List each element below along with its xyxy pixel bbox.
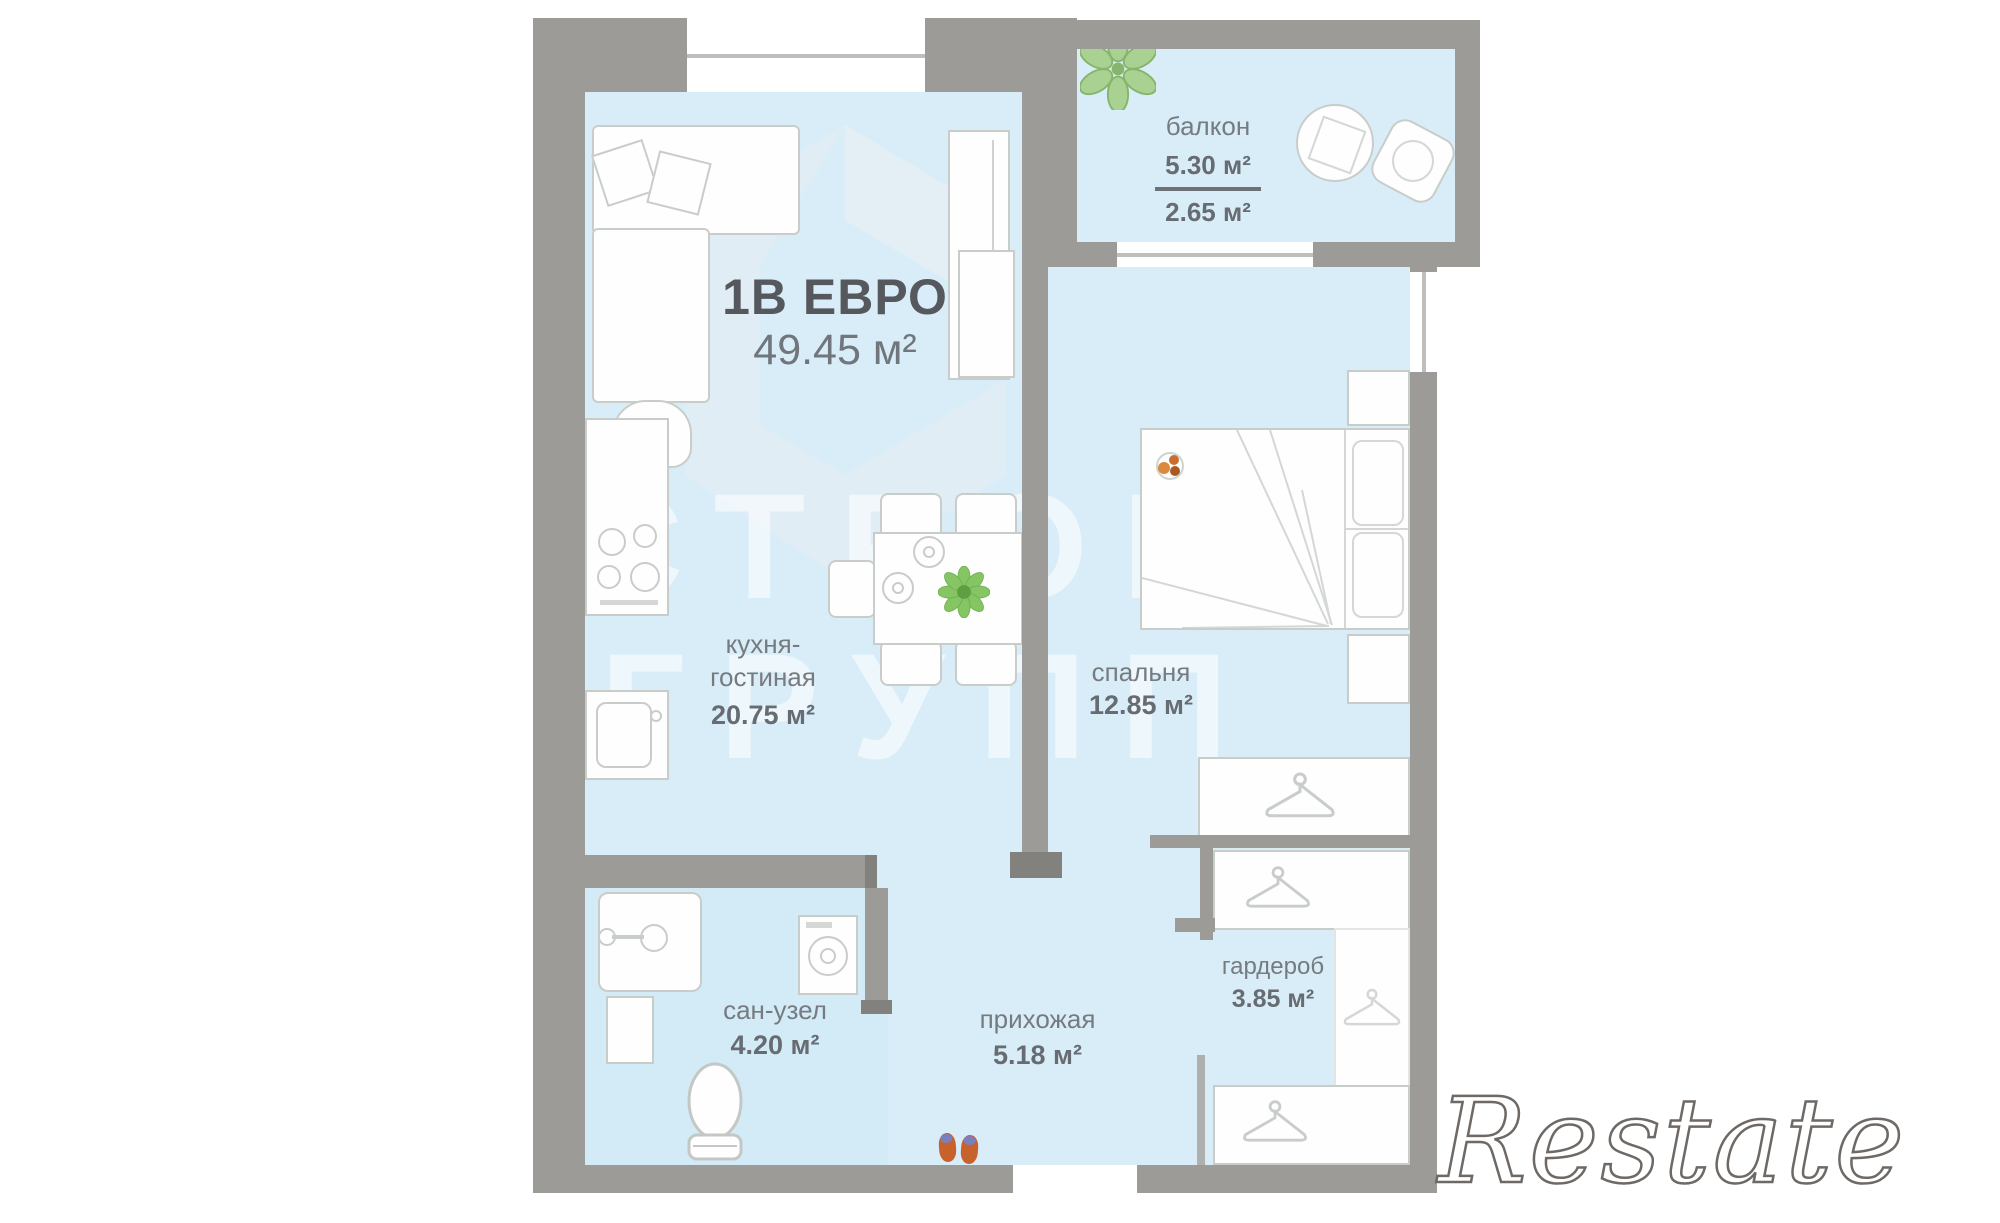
dining-chair-bottom-2 — [955, 640, 1017, 686]
wardrobe-label: гардероб — [1213, 950, 1333, 983]
hob-controls — [600, 600, 658, 605]
floor-plan: СТРОИМ ГРУПП — [0, 0, 2000, 1223]
balcony-area: 5.30 м² 2.65 м² — [1124, 150, 1292, 228]
toilet-icon — [680, 1062, 750, 1164]
wall-bedroom-closet-bottom — [1150, 835, 1410, 848]
table-plant-icon — [938, 566, 990, 618]
kitchen-living-label: кухня- гостиная — [688, 628, 838, 694]
balcony-chair-square-pillow — [1392, 140, 1434, 182]
wall-balcony-bottom-left — [1077, 242, 1117, 267]
balcony-area-full: 5.30 м² — [1155, 150, 1261, 191]
wardrobe-hanger-top-icon — [1243, 862, 1313, 914]
nightstand-bottom — [1347, 634, 1410, 704]
plan-total-area: 49.45 м² — [690, 326, 980, 375]
wall-bathroom-top — [585, 855, 877, 888]
bathroom-label: сан-узел — [700, 994, 850, 1027]
wardrobe-area: 3.85 м² — [1213, 985, 1333, 1014]
kitchen-living-label-line2: гостиная — [710, 662, 816, 692]
kitchen-living-label-line1: кухня- — [726, 629, 801, 659]
dining-chair-bottom-1 — [880, 640, 942, 686]
hob-burner-2 — [633, 524, 657, 548]
hob-burner-1 — [598, 528, 626, 556]
wall-middle-vertical — [1022, 267, 1048, 877]
bedroom-balcony-window — [1117, 244, 1313, 265]
kitchen-sink-tap — [650, 710, 662, 722]
hallway-label: прихожая — [960, 1003, 1115, 1036]
wall-wardrobe-left-lower — [1197, 1055, 1205, 1165]
washing-machine-controls — [806, 922, 832, 928]
wall-bathroom-right-cap — [861, 1000, 892, 1014]
wall-middle-cap — [1010, 852, 1062, 878]
plate-2-inner — [892, 582, 904, 594]
wall-right — [1410, 242, 1437, 1193]
hob-burner-3 — [597, 565, 621, 589]
wardrobe-hanger-bottom-icon — [1240, 1096, 1310, 1148]
wall-wardrobe-step — [1175, 918, 1215, 932]
bedroom-side-window — [1410, 272, 1437, 372]
wall-bathroom-right — [865, 888, 888, 1005]
bedroom-balcony-window-line — [1117, 253, 1313, 257]
wall-bathroom-top-cap — [865, 855, 877, 888]
restate-watermark: Restate — [1438, 1072, 1906, 1210]
nightstand-top — [1347, 370, 1410, 426]
kitchen-window — [687, 25, 925, 87]
wall-balcony-left — [1022, 18, 1077, 267]
shower-tap-head — [640, 924, 668, 952]
balcony-label: балкон — [1128, 110, 1288, 143]
plan-title: 1В ЕВРО — [690, 268, 980, 326]
balcony-area-reduced: 2.65 м² — [1124, 191, 1292, 228]
dining-chair-left — [828, 560, 876, 618]
wall-balcony-top — [1065, 20, 1480, 49]
kitchen-living-area: 20.75 м² — [688, 700, 838, 731]
bed-flower-icon — [1150, 446, 1190, 486]
plate-1-inner — [923, 546, 935, 558]
wall-top-right — [925, 18, 1022, 92]
wardrobe-hanger-right-icon — [1341, 985, 1403, 1031]
bed-pillow-1 — [1352, 440, 1404, 526]
bedroom-closet-hanger-icon — [1262, 768, 1338, 824]
kitchen-window-line — [687, 54, 925, 58]
bedroom-area: 12.85 м² — [1061, 690, 1221, 721]
hallway-floor — [1027, 835, 1213, 1165]
wall-balcony-right — [1455, 20, 1480, 267]
washing-machine-drum-inner — [820, 948, 836, 964]
wall-bottom-left — [533, 1165, 1013, 1193]
wall-bottom-right — [1137, 1165, 1437, 1193]
kitchen-sink-bowl — [596, 702, 652, 768]
bed-pillow-2 — [1352, 532, 1404, 618]
bedroom-side-window-line — [1422, 272, 1426, 372]
hallway-area: 5.18 м² — [960, 1040, 1115, 1071]
bathroom-cabinet — [606, 996, 654, 1064]
bedroom-label: спальня — [1061, 656, 1221, 689]
wall-left — [533, 18, 585, 1193]
wall-balcony-bottom-right — [1313, 242, 1480, 267]
bathroom-area: 4.20 м² — [700, 1030, 850, 1061]
hob-burner-4 — [630, 562, 660, 592]
